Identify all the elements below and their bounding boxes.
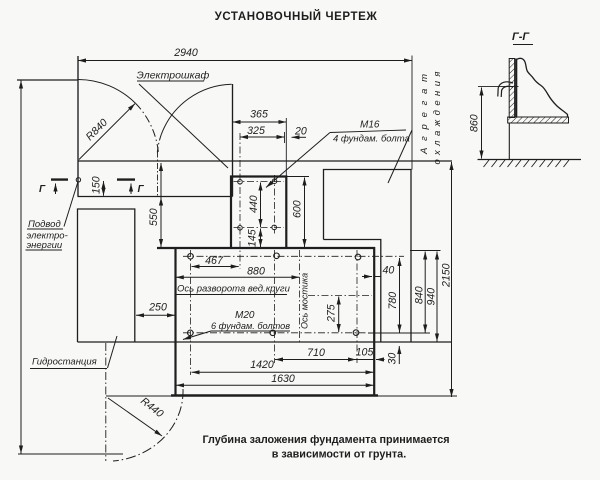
svg-text:1420: 1420 [250,359,274,371]
svg-text:Подвод: Подвод [28,219,61,230]
svg-text:550: 550 [148,208,160,226]
svg-text:Г: Г [39,184,46,195]
svg-text:145: 145 [247,229,259,247]
svg-text:2150: 2150 [440,263,452,288]
svg-text:Г: Г [138,184,145,195]
svg-text:940: 940 [426,288,438,306]
svg-text:40: 40 [383,265,395,277]
svg-text:1630: 1630 [271,373,295,385]
svg-text:840: 840 [414,286,426,304]
svg-text:М20: М20 [235,310,255,321]
svg-text:6 фундам. болтов: 6 фундам. болтов [211,321,290,331]
svg-text:Гидростанция: Гидростанция [32,357,97,368]
svg-text:Г-Г: Г-Г [512,31,530,43]
svg-text:М16: М16 [360,120,380,131]
svg-text:710: 710 [307,347,325,359]
svg-text:150: 150 [91,176,103,194]
svg-text:Электрошкаф: Электрошкаф [137,70,210,82]
svg-text:325: 325 [247,125,265,137]
svg-text:Ось разворота вед.круги: Ось разворота вед.круги [177,284,291,295]
svg-text:780: 780 [387,292,399,310]
svg-text:20: 20 [294,126,307,138]
svg-text:Глубина заложения фундамента п: Глубина заложения фундамента принимается [202,434,449,446]
svg-text:энергии: энергии [27,240,63,251]
svg-text:105: 105 [356,347,374,359]
svg-text:4 фундам. болта: 4 фундам. болта [333,134,410,145]
svg-text:440: 440 [248,195,260,213]
svg-text:880: 880 [247,266,265,278]
svg-text:в зависимости от грунта.: в зависимости от грунта. [272,449,406,461]
svg-text:860: 860 [469,114,481,132]
svg-text:250: 250 [148,302,167,314]
svg-text:Ось мостика: Ось мостика [300,273,310,329]
svg-text:УСТАНОВОЧНЫЙ ЧЕРТЕЖ: УСТАНОВОЧНЫЙ ЧЕРТЕЖ [215,10,378,23]
svg-text:365: 365 [250,109,268,121]
svg-text:467: 467 [205,255,224,267]
svg-text:2940: 2940 [173,47,198,59]
svg-text:30: 30 [387,353,399,365]
svg-text:275: 275 [326,304,338,323]
svg-text:600: 600 [292,200,304,218]
